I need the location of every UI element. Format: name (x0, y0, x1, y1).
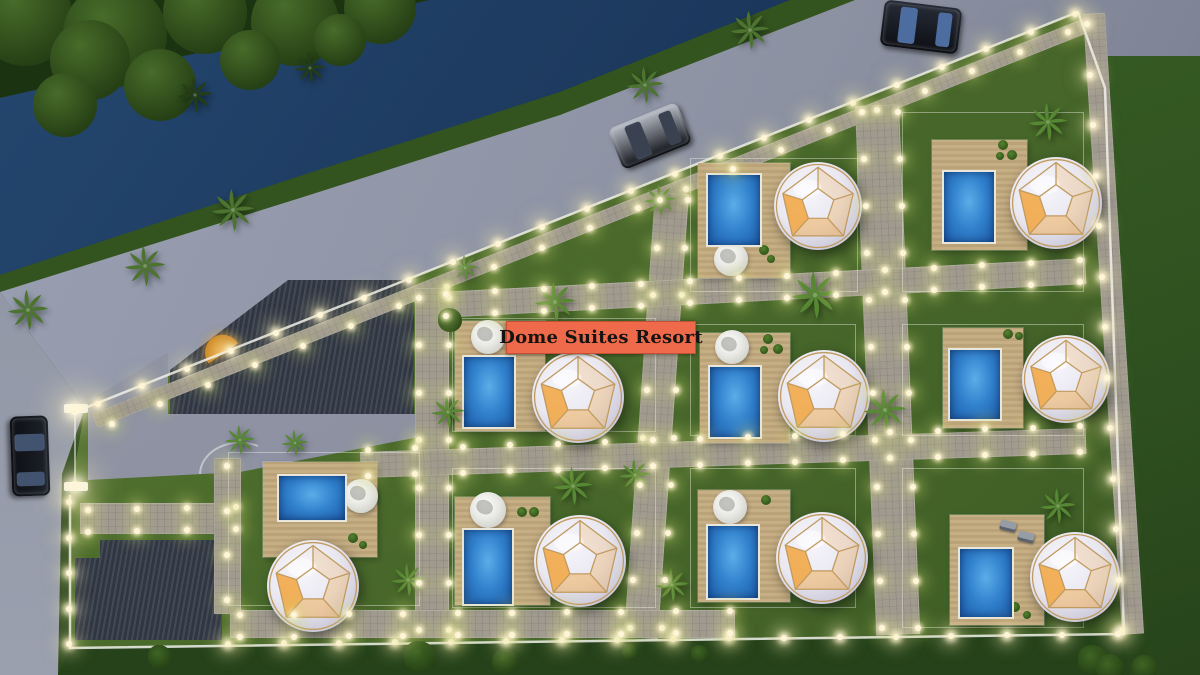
car-windshield (897, 6, 919, 45)
car-rear-window (657, 110, 682, 146)
site-plan-rendering: Dome Suites Resort (0, 0, 1200, 675)
car-silver-sedan (607, 102, 692, 171)
car-windshield (14, 433, 45, 452)
resort-name-label: Dome Suites Resort (506, 321, 696, 354)
resort-name-text: Dome Suites Resort (499, 327, 702, 348)
car-rear-window (934, 12, 952, 48)
car-dark-sedan-top (879, 0, 962, 55)
car-rear-window (16, 472, 45, 487)
car-dark-sedan-side (10, 415, 51, 496)
car-windshield (624, 121, 652, 160)
